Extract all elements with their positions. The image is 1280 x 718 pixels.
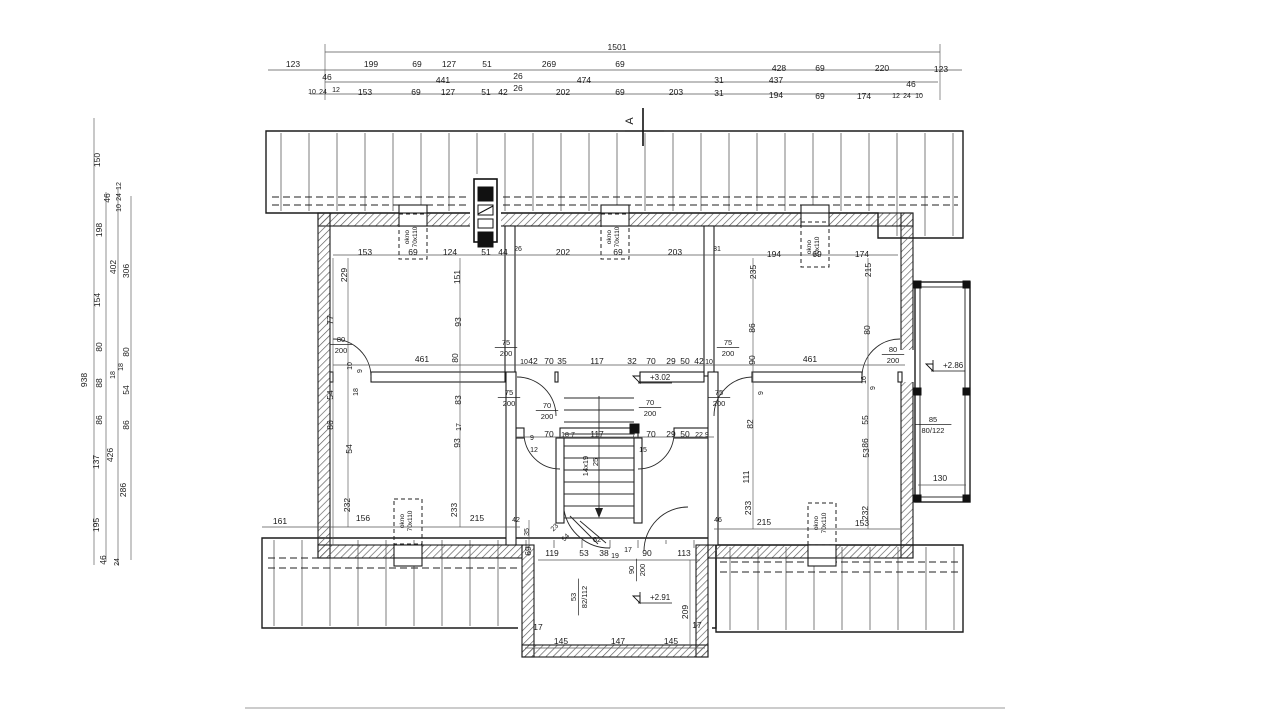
dimension-label: 86	[94, 415, 104, 425]
dimension-label: 54	[344, 444, 354, 454]
dimension-label: 202	[556, 87, 570, 97]
dimension-label: 86	[325, 420, 335, 430]
dimension-label: 86	[747, 323, 757, 333]
window-size: 70x110	[407, 510, 414, 531]
window-word: okno	[404, 230, 411, 244]
dimension-label: 174	[857, 91, 871, 101]
dimension-label: 69	[523, 546, 533, 556]
window-size: 70x110	[821, 512, 828, 533]
dimension-label: 53	[861, 448, 871, 458]
dimension-label: 12	[530, 447, 538, 454]
dimension-label: 31	[713, 246, 721, 253]
dimension-label: 461	[415, 354, 429, 364]
dimension-label: 53	[579, 548, 589, 558]
chimney-flue-open	[478, 219, 493, 228]
dimension-label: 18	[561, 432, 569, 439]
dimension-label: 306	[121, 264, 131, 278]
size-numerator: 80	[889, 345, 897, 354]
dimension-label: 14x19	[581, 456, 590, 476]
dimension-label: 62	[593, 535, 601, 544]
size-numerator: 75	[724, 338, 732, 347]
dimension-label: 35	[524, 528, 531, 536]
dimension-label: 90	[747, 355, 757, 365]
dimension-label: 42	[528, 356, 538, 366]
dimension-label: 9	[357, 369, 364, 373]
size-numerator: 70	[543, 401, 551, 410]
chimney	[470, 174, 501, 247]
dimension-label: 29	[666, 429, 676, 439]
size-denominator: 82/112	[580, 586, 589, 608]
size-denominator: 200	[713, 399, 726, 408]
dimension-label: 70	[544, 429, 554, 439]
dimension-label: 220	[875, 63, 889, 73]
dimension-label: 17	[692, 620, 702, 630]
dimension-label: 24	[114, 558, 121, 566]
dimension-label: 269	[542, 59, 556, 69]
dimension-label: 10	[116, 204, 123, 212]
dimension-label: 19	[611, 553, 619, 560]
dimension-label: 153	[358, 87, 372, 97]
dimension-label: 24	[319, 89, 327, 96]
dimension-label: 69	[408, 247, 418, 257]
size-numerator: 75	[502, 338, 510, 347]
dimension-label: 124	[443, 247, 457, 257]
size-denominator: 200	[503, 399, 516, 408]
dimension-label: 42	[498, 87, 508, 97]
dimension-label: 426	[105, 448, 115, 462]
dimension-label: 153	[855, 518, 869, 528]
dimension-label: 80	[94, 342, 104, 352]
dimension-label: 26	[513, 83, 523, 93]
dimension-label: 145	[664, 636, 678, 646]
dimension-label: 123	[286, 59, 300, 69]
dimension-label: 69	[411, 87, 421, 97]
dimension-label: 194	[769, 90, 783, 100]
dimension-label: 209	[680, 605, 690, 619]
size-numerator: 75	[505, 388, 513, 397]
dimension-label: 35	[557, 356, 567, 366]
dimension-label: 46	[714, 517, 722, 524]
dimension-label: 16	[861, 376, 868, 384]
window-size: 70x110	[412, 226, 419, 247]
dimension-label: 198	[94, 223, 104, 237]
section-label: A	[624, 117, 636, 125]
dimension-label: 461	[803, 354, 817, 364]
balcony	[914, 281, 970, 502]
dimension-label: 7	[632, 432, 636, 439]
dimension-label: 111	[741, 470, 751, 483]
dimension-label: 10	[347, 362, 354, 370]
dimension-label: 202	[556, 247, 570, 257]
dimension-label: 17	[624, 547, 632, 554]
dimension-label: 119	[545, 548, 559, 558]
size-numerator: 75	[715, 388, 723, 397]
dimension-label: 203	[669, 87, 683, 97]
window-word: okno	[399, 514, 406, 528]
dimension-label: 69	[815, 91, 825, 101]
dimension-label: 26	[514, 246, 522, 253]
dimension-label: 113	[677, 548, 691, 558]
size-denominator: 200	[644, 409, 657, 418]
dimension-label: 117	[590, 356, 604, 366]
dimension-label: 286	[118, 483, 128, 497]
dimension-label: 474	[577, 75, 591, 85]
dimension-label: 10	[915, 93, 923, 100]
dimension-label: 42	[512, 517, 520, 524]
dimension-label: 80	[450, 353, 460, 363]
dimension-label: 18	[110, 371, 117, 379]
dimension-label: 69	[615, 59, 625, 69]
window-word: okno	[806, 240, 813, 254]
dimension-label: 10	[705, 359, 713, 366]
size-numerator: 90	[627, 566, 636, 574]
dimension-label: 215	[863, 263, 873, 277]
dimension-label: 29	[666, 356, 676, 366]
dimension-label: 46	[102, 193, 112, 203]
dimension-label: 147	[611, 636, 625, 646]
dimension-label: 25	[591, 458, 600, 466]
dimension-label: 437	[769, 75, 783, 85]
floor-plan-canvas: A 15011231996912751269694286922012346441…	[0, 0, 1280, 718]
dimension-label: 69	[815, 63, 825, 73]
dimension-label: 199	[364, 59, 378, 69]
dimension-label: 77	[325, 315, 335, 325]
level-value: +2.91	[650, 593, 671, 602]
dimension-label: 137	[91, 455, 101, 469]
window-size: 70x110	[614, 226, 621, 247]
dimension-label: 154	[92, 293, 102, 307]
dimension-label: 123	[934, 64, 948, 74]
dimension-label: 82	[745, 419, 755, 429]
size-denominator: 200	[335, 346, 348, 355]
level-value: +3.02	[650, 373, 671, 382]
dimension-label: 15	[639, 447, 647, 454]
attic-floor-plan-drawing: A 15011231996912751269694286922012346441…	[0, 0, 1280, 718]
dimension-label: 938	[79, 373, 89, 387]
dimension-label: 46	[322, 72, 332, 82]
dimension-label: 17	[456, 423, 463, 431]
dimension-label: 7	[571, 432, 575, 439]
dimension-label: 70	[646, 356, 656, 366]
dimension-label: 12	[332, 87, 340, 94]
dimension-label: 130	[933, 473, 947, 483]
dimension-label: 1501	[608, 42, 627, 52]
dimension-label: 233	[743, 501, 753, 515]
dimension-label: 54	[121, 385, 131, 395]
dimension-label: 51	[482, 59, 492, 69]
dimension-label: 402	[108, 260, 118, 274]
dimension-label: 203	[668, 247, 682, 257]
dimension-label: 38	[599, 548, 609, 558]
level-value: +2.86	[943, 361, 964, 370]
size-denominator: 200	[541, 412, 554, 421]
dimension-label: 50	[680, 429, 690, 439]
dimension-label: 17	[533, 622, 543, 632]
dimension-label: 10	[308, 89, 316, 96]
dimension-label: 215	[757, 517, 771, 527]
size-denominator: 80/122	[922, 426, 945, 435]
dimension-label: 55	[860, 415, 870, 425]
dimension-label: 69	[412, 59, 422, 69]
dimension-label: 229	[339, 268, 349, 282]
dimension-label: 42	[694, 356, 704, 366]
dimension-label: 194	[767, 249, 781, 259]
dimension-label: 83	[453, 395, 463, 405]
dimension-label: 46	[906, 79, 916, 89]
dimension-label: 24	[903, 93, 911, 100]
dimension-label: 161	[273, 516, 287, 526]
dimension-label: 145	[554, 636, 568, 646]
dimension-label: 9	[870, 386, 877, 390]
dimension-label: 32	[627, 356, 637, 366]
dimension-label: 156	[356, 513, 370, 523]
dimension-label: 12	[116, 182, 123, 190]
dimension-label: 150	[92, 153, 102, 167]
dimension-label: 50	[680, 356, 690, 366]
size-numerator: 85	[929, 415, 937, 424]
dimension-label: 153	[358, 247, 372, 257]
dimension-label: 22	[695, 432, 703, 439]
size-numerator: 80	[337, 335, 345, 344]
dimension-label: 428	[772, 63, 786, 73]
window-size: 70x110	[814, 236, 821, 257]
dimension-label: 127	[441, 87, 455, 97]
dimension-label: 127	[442, 59, 456, 69]
dimension-label: 9	[758, 391, 765, 395]
dimension-label: 46	[98, 555, 108, 565]
dimension-label: 80	[121, 347, 131, 357]
size-denominator: 200	[500, 349, 513, 358]
dimension-label: 117	[590, 429, 604, 439]
chimney-flue-solid2	[478, 232, 493, 247]
dimension-label: 93	[452, 438, 462, 448]
dimension-label: 10	[520, 359, 528, 366]
dimension-label: 151	[452, 270, 462, 284]
dimension-label: 31	[714, 88, 724, 98]
dimension-label: 215	[470, 513, 484, 523]
size-numerator: 53	[569, 593, 578, 601]
dimension-label: 51	[481, 247, 491, 257]
dimension-label: 233	[449, 503, 459, 517]
window-word: okno	[606, 230, 613, 244]
dimension-label: 235	[748, 265, 758, 279]
dimension-label: 86	[860, 438, 870, 448]
chimney-flue-solid	[478, 187, 493, 201]
size-denominator: 200	[887, 356, 900, 365]
window-word: okno	[813, 516, 820, 530]
dimension-label: 44	[498, 247, 508, 257]
dimension-label: 70	[646, 429, 656, 439]
dimension-label: 70	[544, 356, 554, 366]
dimension-label: 18	[118, 363, 125, 371]
dimension-label: 54	[325, 390, 335, 400]
dimension-label: 69	[613, 247, 623, 257]
dimension-label: 93	[453, 317, 463, 327]
size-denominator: 200	[722, 349, 735, 358]
dimension-label: 90	[642, 548, 652, 558]
dimension-label: 86	[121, 420, 131, 430]
dimension-label: 80	[862, 325, 872, 335]
dimension-label: 9	[530, 435, 534, 442]
dimension-label: 26	[513, 71, 523, 81]
dimension-label: 441	[436, 75, 450, 85]
dimension-label: 232	[342, 498, 352, 512]
size-numerator: 70	[646, 398, 654, 407]
size-denominator: 200	[638, 564, 647, 577]
dimension-label: 88	[94, 378, 104, 388]
dimension-label: 31	[714, 75, 724, 85]
dimension-label: 51	[481, 87, 491, 97]
dimension-label: 12	[892, 93, 900, 100]
dimension-label: 174	[855, 249, 869, 259]
dimension-label: 9	[705, 432, 709, 439]
dimension-label: 195	[91, 518, 101, 532]
dimension-label: 18	[353, 388, 360, 396]
dimension-label: 24	[116, 193, 123, 201]
dimension-label: 69	[615, 87, 625, 97]
